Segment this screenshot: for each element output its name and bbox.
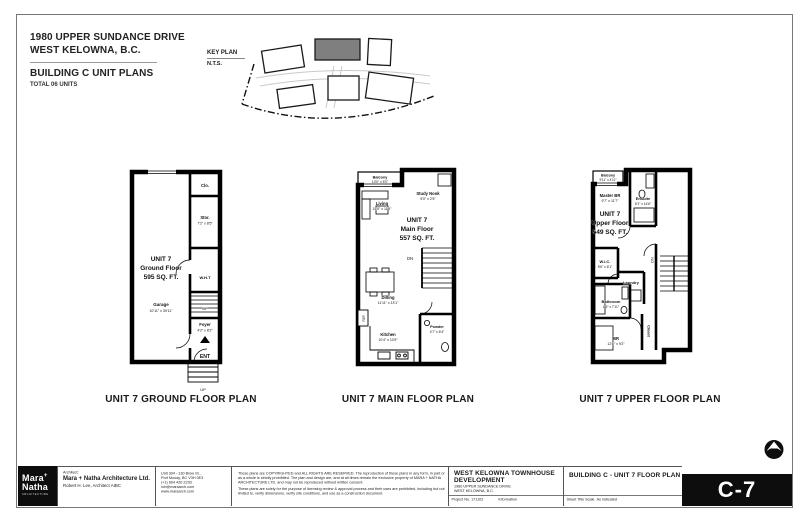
- keyplan-building: [328, 76, 359, 100]
- main-dn-label: DN: [407, 256, 413, 261]
- main-dining-label: Dining: [381, 295, 394, 300]
- main-study-dim: 5'0" x 2'5": [420, 197, 436, 201]
- project-address-line2-tb: WEST KELOWNA, B.C.: [454, 489, 563, 494]
- ground-floor-plan: UNIT 7 Ground Floor 595 SQ. FT. Clo. Sto…: [124, 164, 236, 400]
- disclaimer-paragraph-1: These plans are COPYRIGHTED and ALL RIGH…: [238, 471, 448, 485]
- main-plan-caption: UNIT 7 MAIN FLOOR PLAN: [342, 394, 474, 405]
- header-block: 1980 UPPER SUNDANCE DRIVE WEST KELOWNA, …: [30, 32, 185, 88]
- upper-dn-label: DN: [650, 257, 655, 263]
- upper-floor-plan: Balcony 9'11" x 4'11" Master BR 9'7" x 1…: [584, 164, 708, 400]
- upper-master-dim: 9'7" x 11'7": [602, 199, 620, 203]
- upper-balcony-dim: 9'11" x 4'11": [599, 178, 616, 182]
- ground-foyer-dim: 4'2" x 8'2": [197, 329, 213, 333]
- upper-unit-label: UNIT 7: [600, 211, 621, 218]
- ground-waterheater-label: W.H.T: [199, 275, 211, 280]
- disclaimer-paragraph-2: These plans are solely for the purpose o…: [238, 487, 448, 496]
- scale-value: As indicated: [597, 497, 617, 502]
- firm-name: Mara + Natha Architecture Ltd.: [63, 476, 155, 482]
- firm-logo: Mara+ Natha ARCHITECTURE: [18, 466, 57, 506]
- main-unit-label: UNIT 7: [407, 217, 428, 224]
- main-study-label: Study Nook: [416, 191, 440, 196]
- ground-stair-up-label: UP: [202, 306, 208, 311]
- upper-laundry-label: Laundry: [623, 280, 640, 285]
- architect-box: Architect: Mara + Natha Architecture Ltd…: [57, 466, 155, 506]
- sheet-title-box: BUILDING C - UNIT 7 FLOOR PLAN Sheet Tit…: [563, 466, 682, 506]
- upper-balcony-label: Balcony: [601, 174, 615, 178]
- upper-wic-dim: 5'6" x 6'1": [598, 265, 613, 269]
- main-balcony-dim: 10'0" x 5'0": [372, 180, 389, 184]
- ground-entry-up-label: UP: [200, 387, 206, 392]
- ground-foyer-label: Foyer: [199, 322, 211, 327]
- project-box: WEST KELOWNA TOWNHOUSE DEVELOPMENT 1980 …: [448, 466, 563, 506]
- drawing-sheet: 1980 UPPER SUNDANCE DRIVE WEST KELOWNA, …: [0, 0, 800, 518]
- upper-ensuite-label: Ensuite: [636, 196, 651, 201]
- north-arrow-icon: N: [760, 436, 788, 464]
- ground-area-label: 595 SQ. FT.: [144, 274, 179, 281]
- ground-window: [148, 169, 176, 176]
- firm-website: www.maraarch.com: [161, 489, 231, 494]
- upper-area-label: 549 SQ. FT.: [593, 229, 628, 236]
- ground-plan-caption: UNIT 7 GROUND FLOOR PLAN: [105, 394, 256, 405]
- architect-name: Robert H. Lee, Architect AIBC: [63, 483, 154, 488]
- main-living-dim: 15'5" x 11'9": [373, 207, 393, 211]
- upper-bathroom-label: Bathroom: [602, 299, 621, 304]
- sheet-title-label: Sheet Title: [567, 497, 585, 502]
- main-floor-label: Main Floor: [401, 226, 434, 233]
- logo-word-2: Natha: [22, 483, 57, 492]
- header-divider: [30, 62, 157, 63]
- main-fridge-label: REF.: [362, 314, 366, 321]
- ground-unit-label: UNIT 7: [151, 256, 172, 263]
- upper-closet-label: Closet: [647, 325, 651, 337]
- upper-br-label: BR: [613, 336, 619, 341]
- upper-master-label: Master BR: [600, 193, 621, 198]
- ground-closet-label: Clo.: [201, 183, 209, 188]
- main-kitchen-label: Kitchen: [380, 332, 396, 337]
- keyplan-building-highlighted: [315, 39, 360, 60]
- keyplan-site-drawing: [238, 30, 438, 138]
- main-powder-label: Powder: [430, 325, 444, 329]
- north-letter: N: [771, 450, 777, 459]
- project-address-line2: WEST KELOWNA, B.C.: [30, 45, 185, 56]
- upper-wic-label: W.I.C.: [600, 259, 611, 264]
- main-balcony-label: Balcony: [373, 176, 389, 180]
- logo-plus: +: [44, 473, 48, 479]
- logo-subtext: ARCHITECTURE: [22, 493, 38, 496]
- upper-bathroom-dim: 8'5" x 7'11": [603, 305, 620, 309]
- project-number: Project No. 171102: [452, 497, 484, 502]
- address-box: Unit 304 - 130 Brew St., Port Moody, BC …: [155, 466, 231, 506]
- sheet-number-box: C-7: [682, 474, 792, 506]
- upper-ensuite-dim: 5'1" x 14'6": [635, 202, 652, 206]
- main-powder-dim: 4'7" x 6'4": [430, 330, 445, 334]
- ground-garage-label: Garage: [153, 302, 169, 307]
- sheet-number: C-7: [718, 477, 756, 503]
- architect-label: Architect:: [63, 470, 155, 475]
- total-units: TOTAL 06 UNITS: [30, 82, 185, 88]
- sheet-set-title: BUILDING C UNIT PLANS: [30, 68, 185, 79]
- ground-storage-dim: 7'2" x 8'5": [197, 222, 213, 226]
- project-info-label: Information: [498, 497, 517, 502]
- ground-storage-label: Stor.: [200, 215, 209, 220]
- keyplan-building: [365, 72, 413, 104]
- project-name-line1: WEST KELOWNA TOWNHOUSE: [454, 470, 563, 477]
- keyplan-building: [277, 85, 315, 109]
- ground-exterior-stair: [188, 362, 218, 382]
- sheet-title: BUILDING C - UNIT 7 FLOOR PLAN: [564, 467, 682, 479]
- ground-garage-dim: 10'11" x 39'11": [149, 309, 173, 313]
- main-area-label: 557 SQ. FT.: [400, 235, 435, 242]
- main-living-label: Living: [376, 201, 389, 206]
- upper-br-dim: 12'6" x 9'2": [607, 342, 625, 346]
- upper-plan-caption: UNIT 7 UPPER FLOOR PLAN: [579, 394, 720, 405]
- ground-floor-label: Ground Floor: [140, 265, 182, 272]
- upper-floor-label: Upper Floor: [592, 220, 629, 227]
- main-floor-plan: Balcony 10'0" x 5'0" Living 15'5" x 11'9…: [348, 164, 466, 400]
- main-dining-dim: 11'11" x 13'1": [378, 301, 399, 305]
- project-address-line1: 1980 UPPER SUNDANCE DRIVE: [30, 32, 185, 43]
- disclaimer-box: These plans are COPYRIGHTED and ALL RIGH…: [231, 466, 448, 506]
- ground-entry-label: ENT: [200, 354, 211, 360]
- keyplan-building: [262, 45, 305, 73]
- main-kitchen-dim: 10'4" x 10'9": [378, 338, 398, 342]
- keyplan-building: [367, 38, 391, 65]
- project-name-line2: DEVELOPMENT: [454, 477, 563, 484]
- scale-label: Scale: [585, 497, 594, 502]
- keyplan-buildings: [262, 38, 414, 108]
